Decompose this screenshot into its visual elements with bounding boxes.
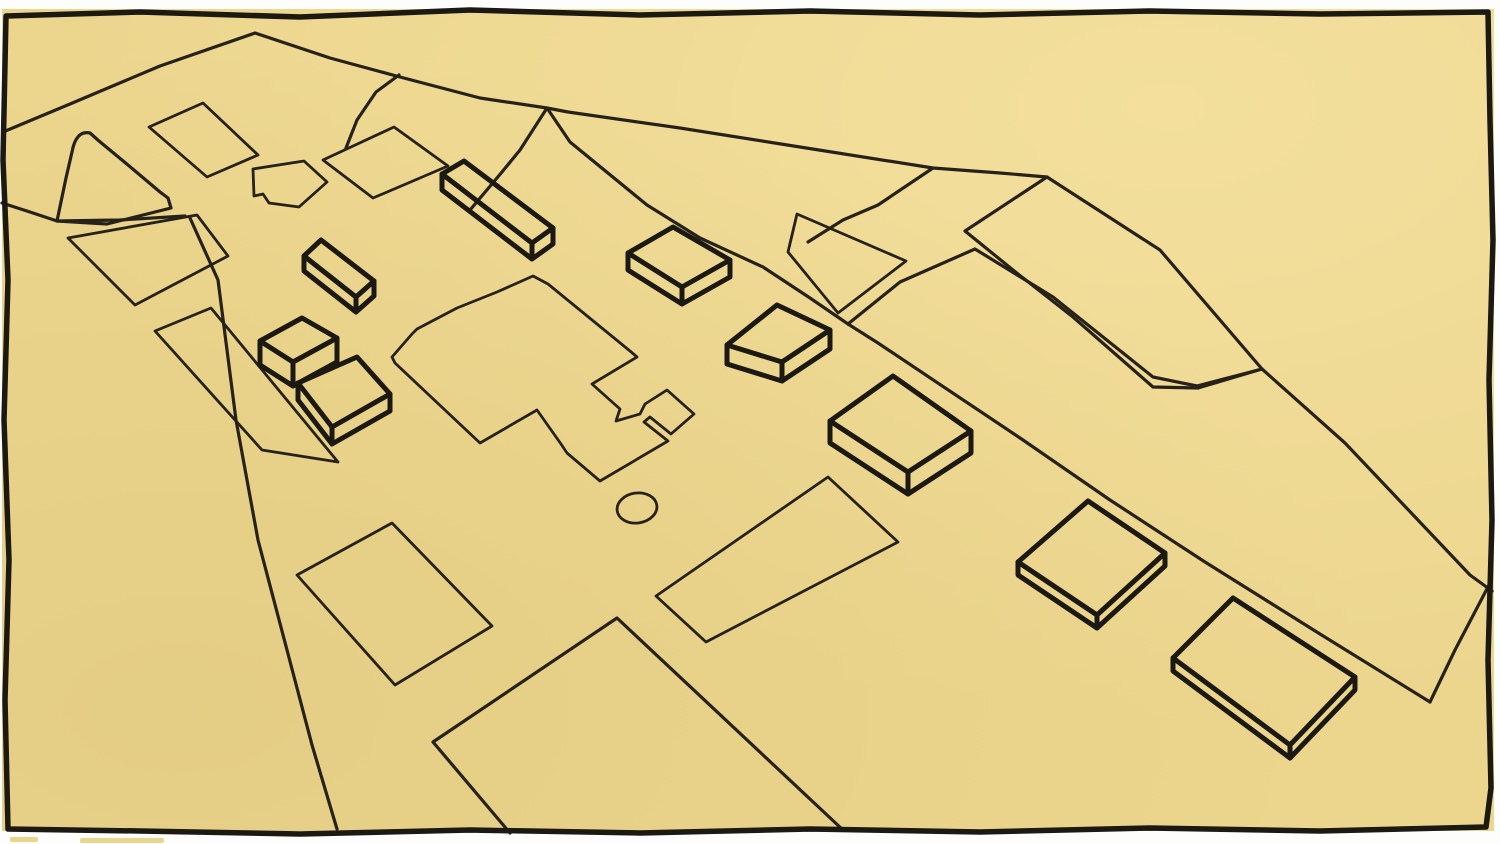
site-plan-sketch (0, 0, 1500, 844)
paper-smudge-1 (10, 837, 38, 842)
sketch-page (0, 0, 1500, 844)
paper-shading (2, 9, 1494, 831)
paper-smudge-2 (80, 838, 164, 843)
